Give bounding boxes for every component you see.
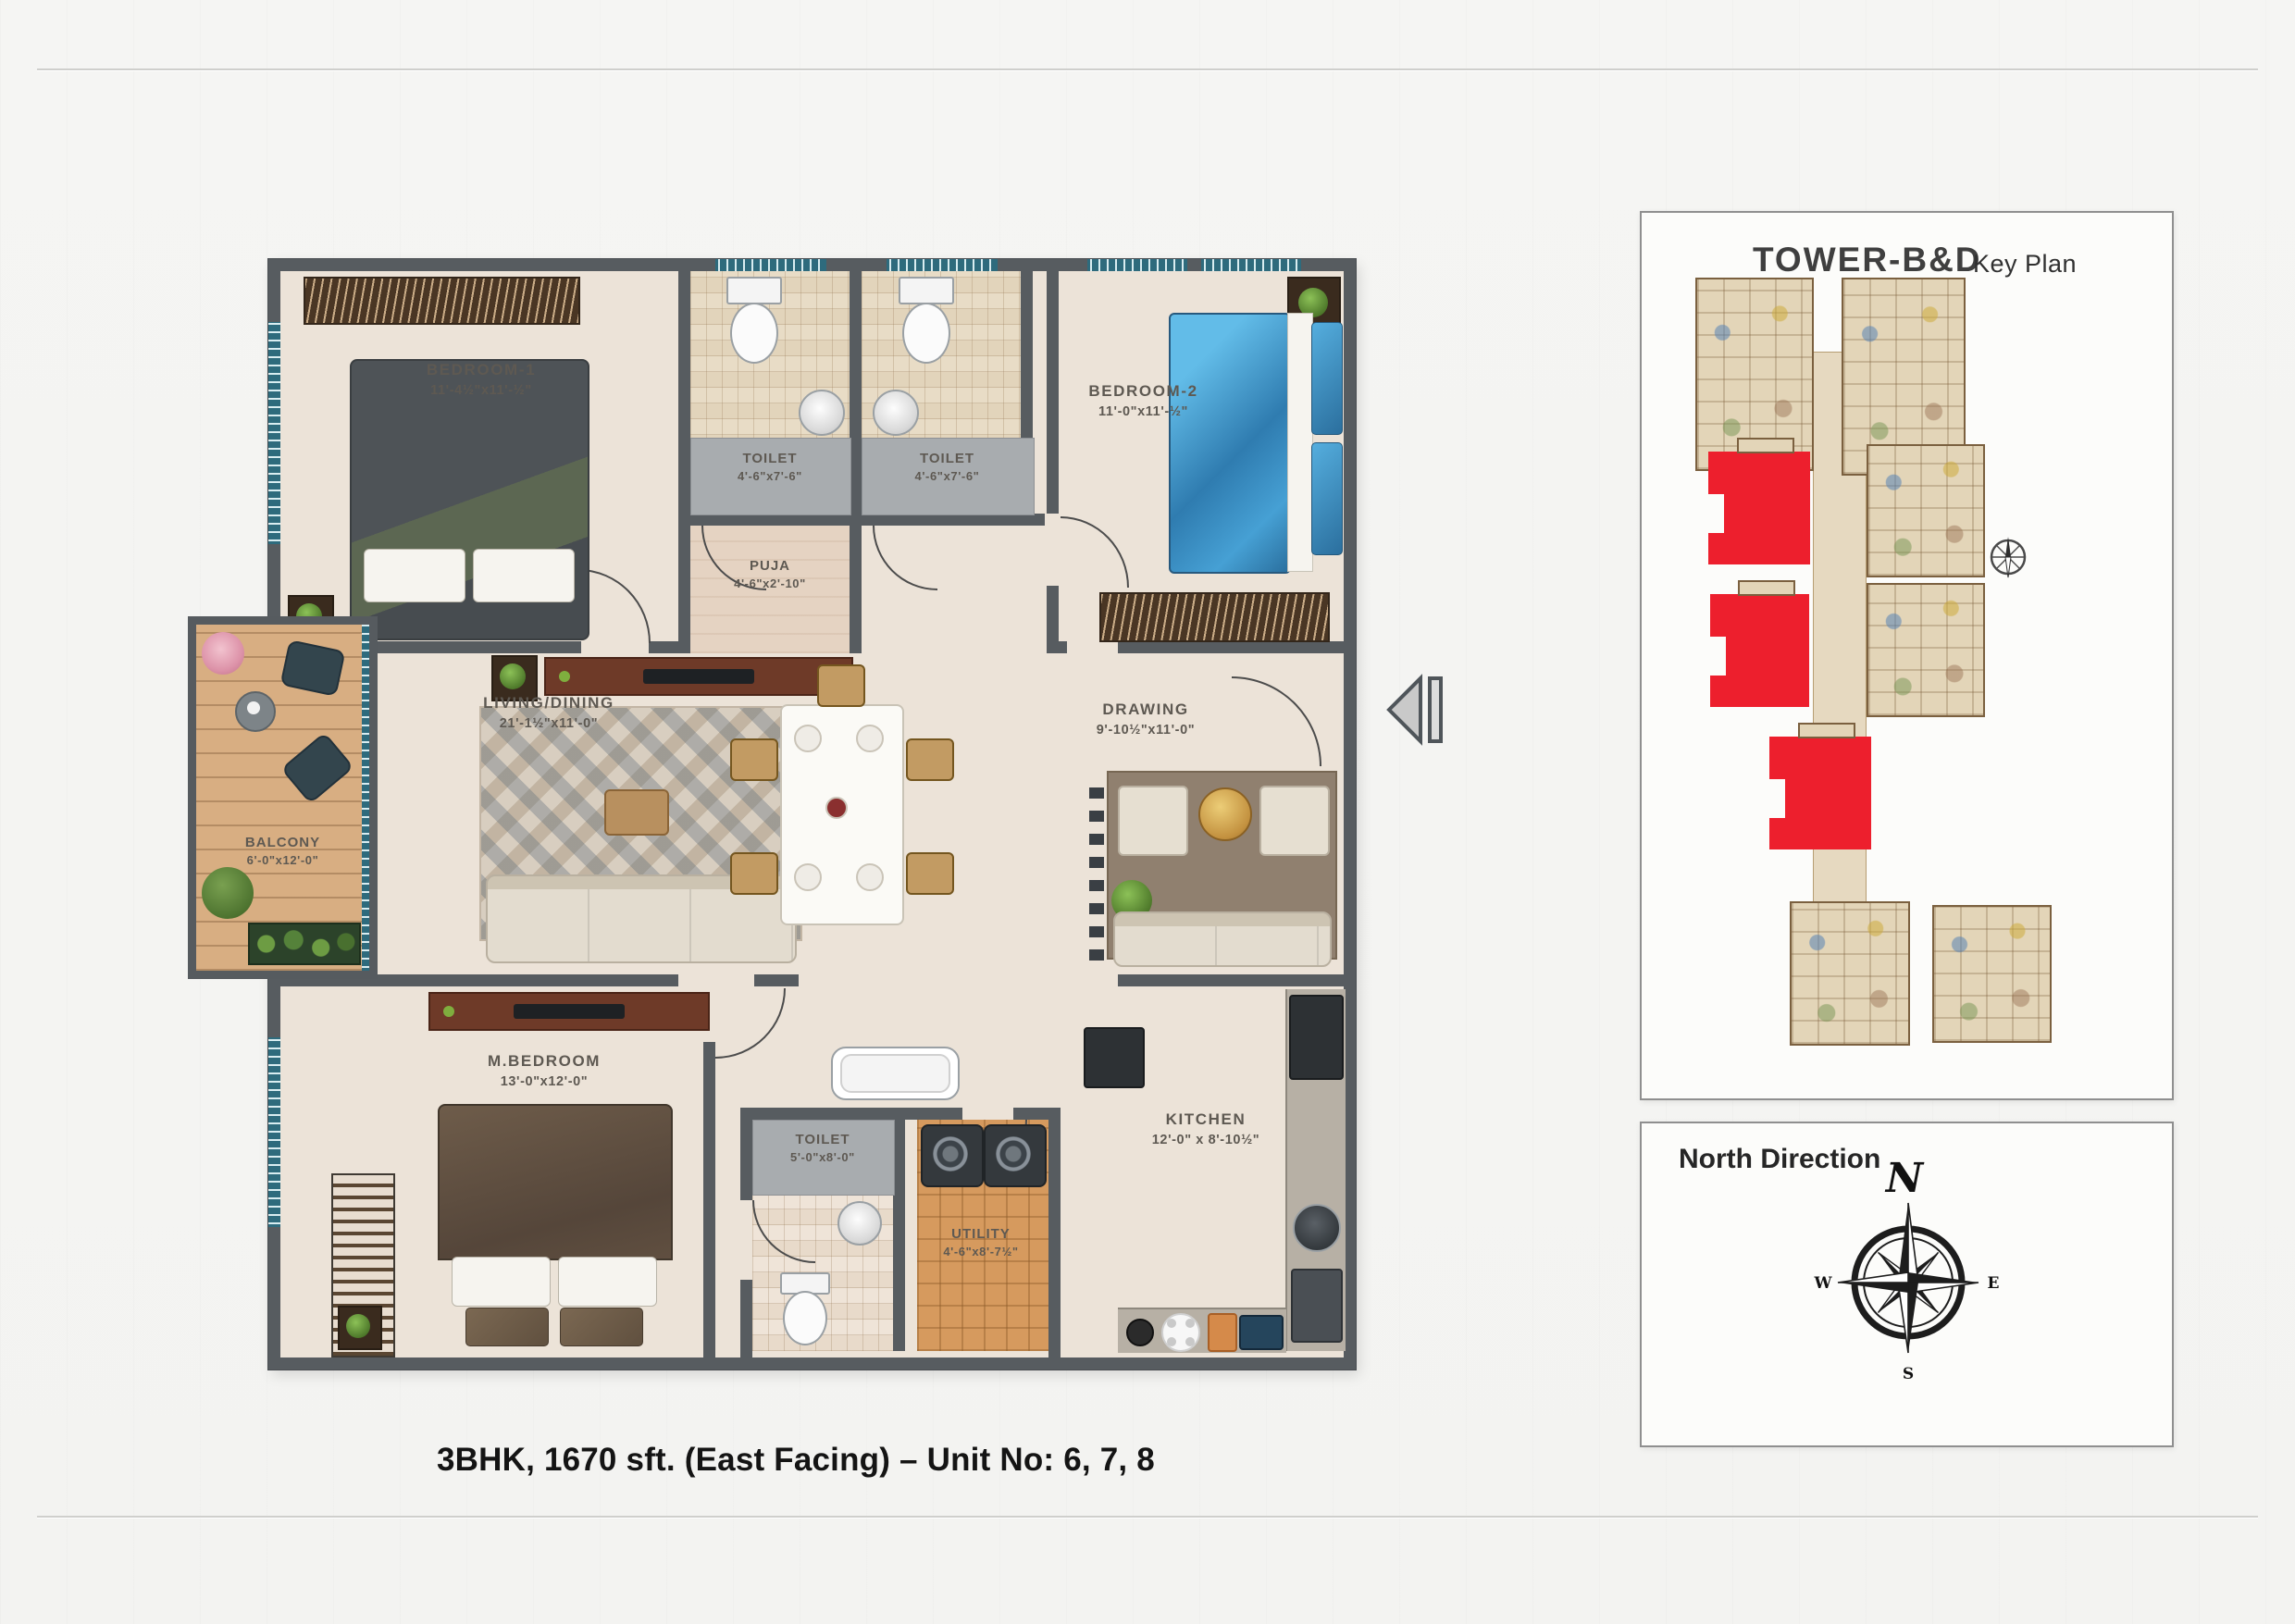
- balcony-planter: [248, 923, 361, 965]
- dining-chair: [817, 664, 865, 707]
- balcony-tree: [202, 867, 254, 919]
- wall-segment: [678, 271, 690, 521]
- dining-chair: [730, 738, 778, 781]
- wall-segment: [1047, 271, 1059, 514]
- washing-machine: [921, 1124, 984, 1187]
- room-label-drawing: DRAWING 9'-10½"x11'-0": [1039, 699, 1252, 739]
- wall-segment: [740, 1108, 905, 1120]
- toilet1-wc-bowl: [730, 303, 778, 364]
- toilet1-sink: [799, 390, 845, 436]
- compass-n-label: N: [1884, 1155, 1925, 1202]
- wall-segment: [1118, 974, 1344, 986]
- keyplan-unit: [1867, 444, 1985, 577]
- dining-plate: [856, 725, 884, 752]
- bathtub: [831, 1047, 960, 1100]
- dining-chair: [730, 852, 778, 895]
- wall-segment: [905, 1108, 962, 1120]
- kitchen-tray: [1239, 1315, 1284, 1350]
- window-strip: [268, 1037, 280, 1227]
- wall-segment: [1048, 1108, 1061, 1357]
- keyplan-unit: [1790, 901, 1910, 1046]
- dining-centerpiece: [825, 797, 848, 819]
- window-strip: [268, 322, 280, 544]
- dining-plate: [856, 863, 884, 891]
- compass-w-label: W: [1813, 1274, 1832, 1293]
- toilet2-wc: [899, 277, 954, 304]
- balcony-chair: [279, 639, 345, 697]
- kitchen-sink: [1293, 1204, 1341, 1252]
- page: BALCONY 6'-0"x12'-0" BEDROOM-1 11'-4½"x1…: [0, 0, 2295, 1624]
- top-divider: [37, 68, 2258, 70]
- bedroom1-wardrobe: [304, 277, 580, 325]
- cutting-board: [1208, 1313, 1237, 1352]
- drawing-sofa: [1113, 911, 1332, 967]
- room-label-mbedroom: M.BEDROOM 13'-0"x12'-0": [419, 1050, 669, 1091]
- door-arc: [873, 526, 937, 590]
- kitchen-appliance: [1084, 1027, 1145, 1088]
- plan-caption: 3BHK, 1670 sft. (East Facing) – Unit No:…: [437, 1442, 1155, 1479]
- dining-plate: [794, 863, 822, 891]
- toilet2-wc-bowl: [902, 303, 950, 364]
- bed-pillow: [452, 1257, 551, 1307]
- room-label-balcony: BALCONY 6'-0"x12'-0": [196, 833, 369, 869]
- fridge: [1289, 995, 1344, 1080]
- mbedroom-bed: [438, 1104, 673, 1260]
- kitchen-item: [1126, 1319, 1154, 1346]
- dining-chair: [906, 738, 954, 781]
- bed-pillow: [473, 549, 575, 602]
- bed-pillow: [1311, 442, 1343, 555]
- bed-pillow: [560, 1308, 643, 1346]
- bedroom2-bed: [1169, 313, 1291, 574]
- living-coffee-table: [604, 789, 669, 836]
- room-label-bedroom1: BEDROOM-1 11'-4½"x11'-½": [366, 359, 597, 400]
- wall-segment: [1013, 1108, 1048, 1120]
- dining-plate: [794, 725, 822, 752]
- room-label-bedroom2: BEDROOM-2 11'-0"x11'-½": [1062, 380, 1224, 421]
- bedroom2-wardrobe: [1099, 592, 1330, 642]
- keyplan-compass-icon: [1986, 535, 2030, 579]
- keyplan-title: TOWER-B&D: [1753, 241, 1982, 279]
- living-tv-console: [544, 657, 853, 696]
- window-strip: [1087, 259, 1187, 271]
- balcony-table: [235, 691, 276, 732]
- plant-box: [338, 1306, 382, 1350]
- dining-chair: [906, 852, 954, 895]
- balcony: BALCONY 6'-0"x12'-0": [188, 616, 378, 979]
- drawing-pouf: [1118, 786, 1188, 856]
- keyplan-subtitle: Key Plan: [1973, 250, 2077, 279]
- wall-segment: [1118, 641, 1344, 653]
- entrance-arrow-icon: [1383, 671, 1452, 749]
- wall-segment: [703, 1042, 715, 1357]
- window-strip: [362, 625, 369, 971]
- bottom-divider: [37, 1516, 2258, 1518]
- balcony-chair: [280, 732, 354, 804]
- room-label-toilet2: TOILET 4'-6"x7'-6": [862, 449, 1033, 485]
- door-arc: [715, 988, 786, 1059]
- stove-burners: [1161, 1313, 1200, 1352]
- bed-pillow: [465, 1308, 549, 1346]
- toilet2-sink: [873, 390, 919, 436]
- room-label-toilet1: TOILET 4'-6"x7'-6": [690, 449, 850, 485]
- bed-pillow: [1311, 322, 1343, 435]
- room-label-puja: PUJA 4'-6"x2'-10": [690, 556, 850, 592]
- drawing-side-table: [1198, 787, 1252, 841]
- bed-pillow: [558, 1257, 657, 1307]
- window-strip: [715, 259, 826, 271]
- kitchen-hob: [1291, 1269, 1343, 1343]
- drawing-shelf: [1089, 785, 1104, 961]
- bedroom2-sheet: [1287, 313, 1313, 572]
- keyplan-highlight-unit-6: [1708, 452, 1810, 564]
- bed-pillow: [364, 549, 465, 602]
- room-label-utility: UTILITY 4'-6"x8'-7½": [913, 1224, 1048, 1260]
- wall-segment: [678, 514, 690, 653]
- wall-segment: [1047, 641, 1067, 653]
- drawing-pouf: [1259, 786, 1330, 856]
- toilet3-sink: [837, 1201, 882, 1246]
- floor-plan: BALCONY 6'-0"x12'-0" BEDROOM-1 11'-4½"x1…: [268, 259, 1356, 1370]
- balcony-flower-plant: [202, 632, 244, 675]
- keyplan-unit: [1867, 583, 1985, 717]
- compass-rose-icon: N E S W: [1797, 1153, 2019, 1421]
- room-label-living: LIVING/DINING 21'-1½"x11'-0": [428, 692, 669, 733]
- door-arc: [1061, 516, 1129, 588]
- key-plan-panel: TOWER-B&D Key Plan: [1640, 211, 2174, 1100]
- mbedroom-tv-console: [428, 992, 710, 1031]
- wall-segment: [740, 1280, 752, 1357]
- north-direction-panel: North Direction N E S: [1640, 1122, 2174, 1447]
- compass-e-label: E: [1988, 1274, 2000, 1293]
- window-strip: [887, 259, 998, 271]
- keyplan-highlight-unit-8: [1769, 737, 1871, 849]
- room-label-kitchen: KITCHEN 12'-0" x 8'-10½": [1095, 1109, 1317, 1149]
- wall-segment: [754, 974, 799, 986]
- compass-s-label: S: [1903, 1365, 1914, 1383]
- toilet1-wc: [726, 277, 782, 304]
- wall-segment: [740, 1108, 752, 1200]
- toilet3-wc-bowl: [783, 1291, 827, 1345]
- wall-segment: [850, 514, 862, 653]
- keyplan-highlight-unit-7: [1710, 594, 1809, 707]
- window-strip: [1201, 259, 1301, 271]
- washing-machine: [984, 1124, 1047, 1187]
- room-label-toilet3: TOILET 5'-0"x8'-0": [752, 1130, 893, 1166]
- keyplan-unit: [1932, 905, 2052, 1043]
